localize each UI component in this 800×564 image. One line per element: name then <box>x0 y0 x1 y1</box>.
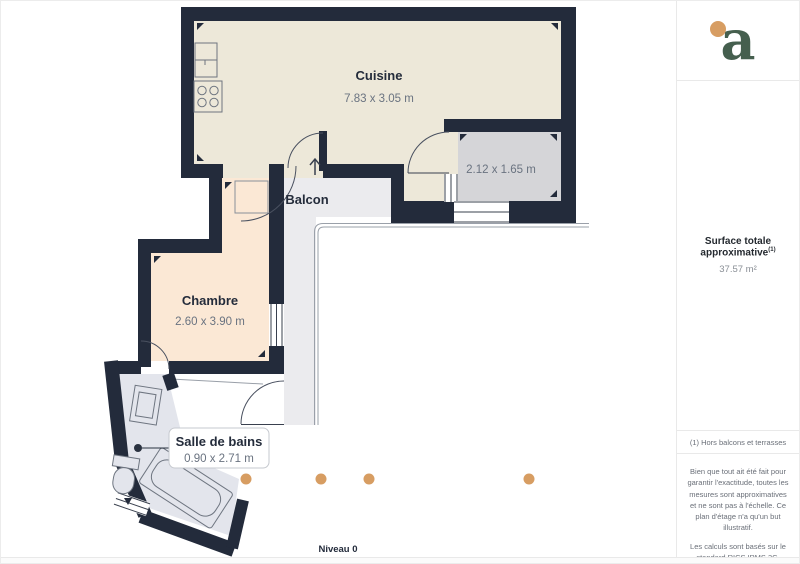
surface-summary: Surface totale approximative(1) 37.57 m² <box>677 81 799 431</box>
logo-letter: a <box>721 8 756 72</box>
label-chambre: Chambre <box>182 293 238 308</box>
surface-title: Surface totale approximative(1) <box>683 236 793 258</box>
disclaimer-text: Bien que tout ait été fait pour garantir… <box>686 466 790 534</box>
bathroom-sink-icon <box>130 385 162 425</box>
surface-title-superscript: (1) <box>768 247 775 253</box>
level-label: Niveau 0 <box>318 544 357 555</box>
dims-terrasse-grise: 2.12 x 1.65 m <box>466 164 536 176</box>
window-cuisine <box>444 174 458 202</box>
brand-logo: a <box>721 18 756 64</box>
dims-cuisine: 7.83 x 3.05 m <box>344 93 414 105</box>
camera-dots <box>241 474 535 485</box>
label-cuisine: Cuisine <box>356 68 403 83</box>
window-terrasse <box>454 201 509 223</box>
camera-dot[interactable] <box>524 474 535 485</box>
footnote-cell: (1) Hors balcons et terrasses <box>677 431 799 454</box>
window-chambre <box>270 304 283 346</box>
floorplan-svg: Cuisine 7.83 x 3.05 m 2.12 x 1.65 m Balc… <box>1 1 676 560</box>
label-balcon: Balcon <box>285 192 328 207</box>
legal-cell: Bien que tout ait été fait pour garantir… <box>677 454 799 560</box>
room-balcon-corridor <box>284 217 316 425</box>
logo-cell: a <box>677 1 799 81</box>
dims-chambre: 2.60 x 3.90 m <box>175 316 245 328</box>
surface-title-text: Surface totale approximative <box>700 236 771 258</box>
camera-dot[interactable] <box>241 474 252 485</box>
footer-strip <box>1 557 799 563</box>
info-panel: a Surface totale approximative(1) 37.57 … <box>676 1 799 560</box>
footnote-text: (1) Hors balcons et terrasses <box>690 438 786 447</box>
dims-salle-de-bains: 0.90 x 2.71 m <box>184 453 254 465</box>
camera-dot[interactable] <box>316 474 327 485</box>
door-arc-salle-de-bains <box>241 381 284 424</box>
floorplan-page: Cuisine 7.83 x 3.05 m 2.12 x 1.65 m Balc… <box>0 0 800 564</box>
camera-dot[interactable] <box>364 474 375 485</box>
floorplan-canvas: Cuisine 7.83 x 3.05 m 2.12 x 1.65 m Balc… <box>1 1 676 560</box>
logo-dot-icon <box>710 21 726 37</box>
label-salle-de-bains: Salle de bains <box>176 434 263 449</box>
surface-value: 37.57 m² <box>719 264 757 275</box>
